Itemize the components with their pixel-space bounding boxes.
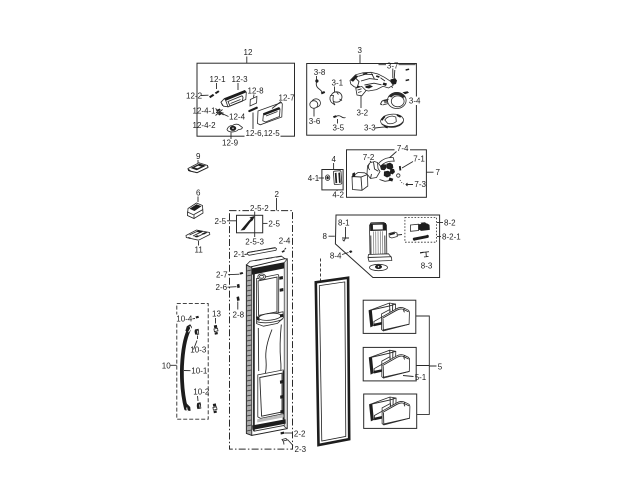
svg-text:3-1: 3-1 (332, 79, 344, 88)
svg-text:10: 10 (162, 362, 171, 371)
svg-text:10-4: 10-4 (176, 315, 193, 324)
svg-text:12-4-1: 12-4-1 (193, 107, 217, 116)
svg-text:3-3: 3-3 (364, 124, 376, 133)
svg-text:2-5-2: 2-5-2 (250, 204, 269, 213)
svg-text:3: 3 (358, 46, 363, 55)
svg-text:12: 12 (244, 48, 253, 57)
svg-text:3-8: 3-8 (314, 68, 326, 77)
svg-text:9: 9 (196, 152, 201, 161)
svg-text:3-5: 3-5 (333, 124, 345, 133)
svg-text:7-4: 7-4 (397, 144, 409, 153)
svg-text:4: 4 (332, 155, 337, 164)
svg-text:2-5: 2-5 (215, 217, 227, 226)
svg-text:2-5: 2-5 (268, 220, 280, 229)
svg-text:2-2: 2-2 (294, 430, 306, 439)
svg-text:8-2-1: 8-2-1 (442, 233, 461, 242)
svg-text:3-2: 3-2 (357, 109, 369, 118)
svg-text:2-6: 2-6 (216, 283, 228, 292)
svg-text:12-2: 12-2 (186, 92, 203, 101)
svg-text:12-4-2: 12-4-2 (193, 121, 217, 130)
svg-text:4-1: 4-1 (308, 174, 320, 183)
svg-text:2-5-3: 2-5-3 (245, 238, 264, 247)
svg-text:10-1: 10-1 (191, 367, 208, 376)
svg-text:12-6,12-5: 12-6,12-5 (246, 129, 281, 138)
svg-text:8: 8 (323, 232, 328, 241)
svg-text:3-4: 3-4 (409, 97, 421, 106)
svg-text:8-3: 8-3 (421, 262, 433, 271)
svg-text:8-4: 8-4 (330, 252, 342, 261)
svg-text:12-1: 12-1 (210, 75, 227, 84)
svg-text:7: 7 (436, 168, 441, 177)
svg-text:2-8: 2-8 (233, 311, 245, 320)
svg-text:7-1: 7-1 (413, 155, 425, 164)
svg-text:2-1: 2-1 (234, 250, 246, 259)
svg-text:5: 5 (438, 363, 443, 372)
svg-text:2: 2 (275, 190, 280, 199)
svg-text:2-4: 2-4 (279, 237, 291, 246)
svg-text:8-1: 8-1 (338, 219, 350, 228)
svg-text:2-3: 2-3 (295, 445, 307, 454)
svg-text:8-2: 8-2 (444, 219, 456, 228)
svg-text:12-7: 12-7 (279, 94, 296, 103)
svg-text:12-4: 12-4 (229, 113, 246, 122)
svg-text:7-2: 7-2 (363, 153, 375, 162)
svg-text:10-2: 10-2 (193, 388, 210, 397)
svg-text:10-3: 10-3 (190, 346, 207, 355)
svg-text:2-7: 2-7 (216, 271, 228, 280)
svg-text:11: 11 (195, 246, 204, 255)
svg-text:6: 6 (196, 189, 201, 198)
svg-text:5-1: 5-1 (415, 373, 427, 382)
svg-text:12-8: 12-8 (248, 87, 265, 96)
svg-text:12-3: 12-3 (232, 75, 249, 84)
svg-text:7-3: 7-3 (414, 180, 426, 189)
svg-text:13: 13 (212, 310, 221, 319)
svg-text:3-6: 3-6 (309, 117, 321, 126)
svg-text:12-9: 12-9 (222, 139, 239, 148)
svg-text:4-2: 4-2 (332, 191, 344, 200)
